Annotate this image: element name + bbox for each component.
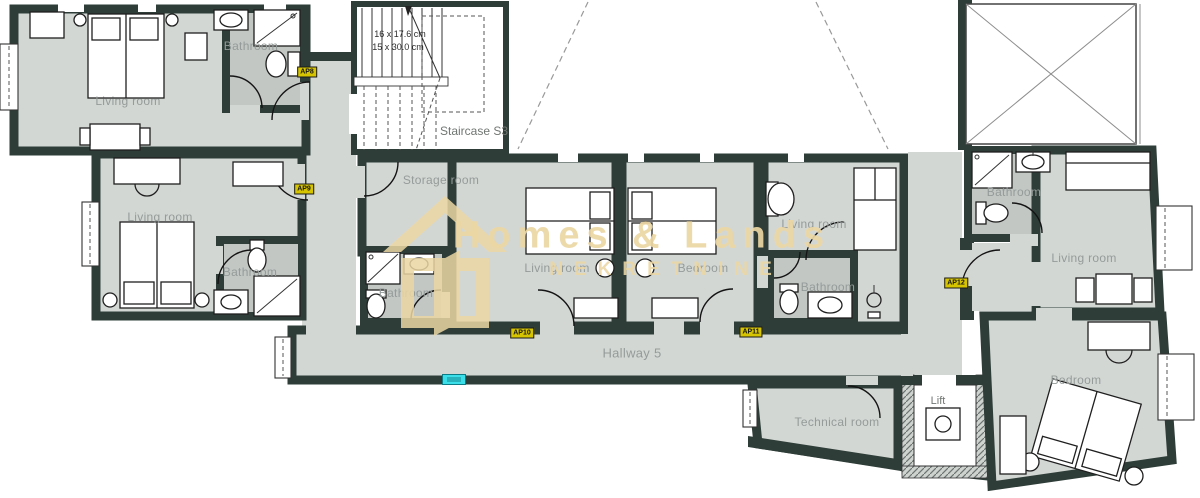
- toilet-icon: [266, 51, 300, 77]
- cabinet-icon: [30, 12, 64, 38]
- staircase-label: Staircase S3: [440, 124, 508, 138]
- sink-icon: [766, 182, 794, 216]
- stool-icon: [636, 259, 654, 277]
- room-label-ap10-living: Living room: [524, 261, 589, 275]
- room-label-ap11-bath: Bathroom: [801, 280, 855, 294]
- entry-corridor: [908, 152, 962, 380]
- floor-plan-drawing: [0, 0, 1200, 498]
- badge-ap12: AP12: [944, 278, 968, 289]
- bed-icon: [120, 222, 194, 308]
- stool-icon: [74, 14, 86, 26]
- window: [82, 202, 99, 266]
- room-label-ap9-bath: Bathroom: [223, 265, 277, 279]
- room-label-ap8-bath: Bathroom: [224, 39, 278, 53]
- room-label-ap12-bedroom: Bedroom: [1051, 373, 1102, 387]
- hallway-5: [292, 330, 906, 380]
- lift-icon: [926, 408, 960, 440]
- window: [275, 337, 291, 378]
- bed-icon: [628, 188, 716, 254]
- void-areas: [510, 0, 1140, 150]
- room-label-technical: Technical room: [795, 415, 880, 429]
- table-icon: [80, 124, 150, 150]
- nightstand-icon: [1000, 416, 1026, 474]
- sink-icon: [808, 292, 852, 318]
- room-label-ap10-bath: Bathroom: [379, 286, 433, 300]
- stool-icon: [596, 259, 614, 277]
- room-label-ap11-living: Living room: [781, 217, 846, 231]
- wardrobe-icon: [854, 168, 896, 250]
- sink-icon: [404, 254, 434, 274]
- window: [1156, 206, 1192, 270]
- room-label-ap11-bedroom: Bedroom: [678, 261, 729, 275]
- window: [1158, 354, 1194, 420]
- badge-ap11: AP11: [739, 327, 762, 338]
- sink-icon: [1016, 150, 1050, 172]
- room-label-ap9-living: Living room: [127, 210, 192, 224]
- dining-table-icon: [1076, 274, 1152, 304]
- stool-icon: [1125, 467, 1143, 485]
- stair-dimension-2: 15 x 30.0 cm: [372, 42, 424, 52]
- bench-icon: [652, 298, 698, 318]
- bench-icon: [574, 298, 618, 318]
- bed-icon: [88, 14, 164, 98]
- stool-icon: [166, 14, 178, 26]
- lift-shaft-wall: [902, 375, 914, 474]
- hallway-marker: [442, 374, 466, 385]
- stair-dimension-1: 16 x 17.6 cm: [374, 29, 426, 39]
- shower-icon: [366, 252, 400, 284]
- shower-icon: [254, 276, 300, 316]
- toilet-icon: [976, 202, 1008, 224]
- badge-ap9: AP9: [294, 184, 314, 195]
- window: [743, 390, 757, 427]
- floor-plan: Living room Bathroom Living room Bathroo…: [0, 0, 1200, 498]
- badge-ap8: AP8: [297, 67, 317, 78]
- shower-icon: [972, 152, 1012, 188]
- sink-icon: [214, 10, 248, 30]
- sink-icon: [214, 290, 248, 314]
- window: [0, 44, 18, 110]
- room-label-ap8-living: Living room: [95, 94, 160, 108]
- room-label-lift: Lift: [931, 395, 946, 407]
- badge-ap10: AP10: [510, 328, 534, 339]
- cabinet-icon: [233, 162, 283, 186]
- stool-icon: [195, 293, 209, 307]
- room-label-ap12-bath: Bathroom: [987, 185, 1041, 199]
- toilet-icon: [780, 284, 798, 314]
- sofa-icon: [1066, 152, 1150, 190]
- stool-icon: [103, 293, 117, 307]
- room-label-storage: Storage room: [403, 173, 479, 187]
- room-label-hallway: Hallway 5: [602, 346, 661, 361]
- bed-icon: [526, 188, 614, 254]
- room-label-ap12-living: Living room: [1051, 251, 1116, 265]
- cabinet-icon: [185, 33, 207, 60]
